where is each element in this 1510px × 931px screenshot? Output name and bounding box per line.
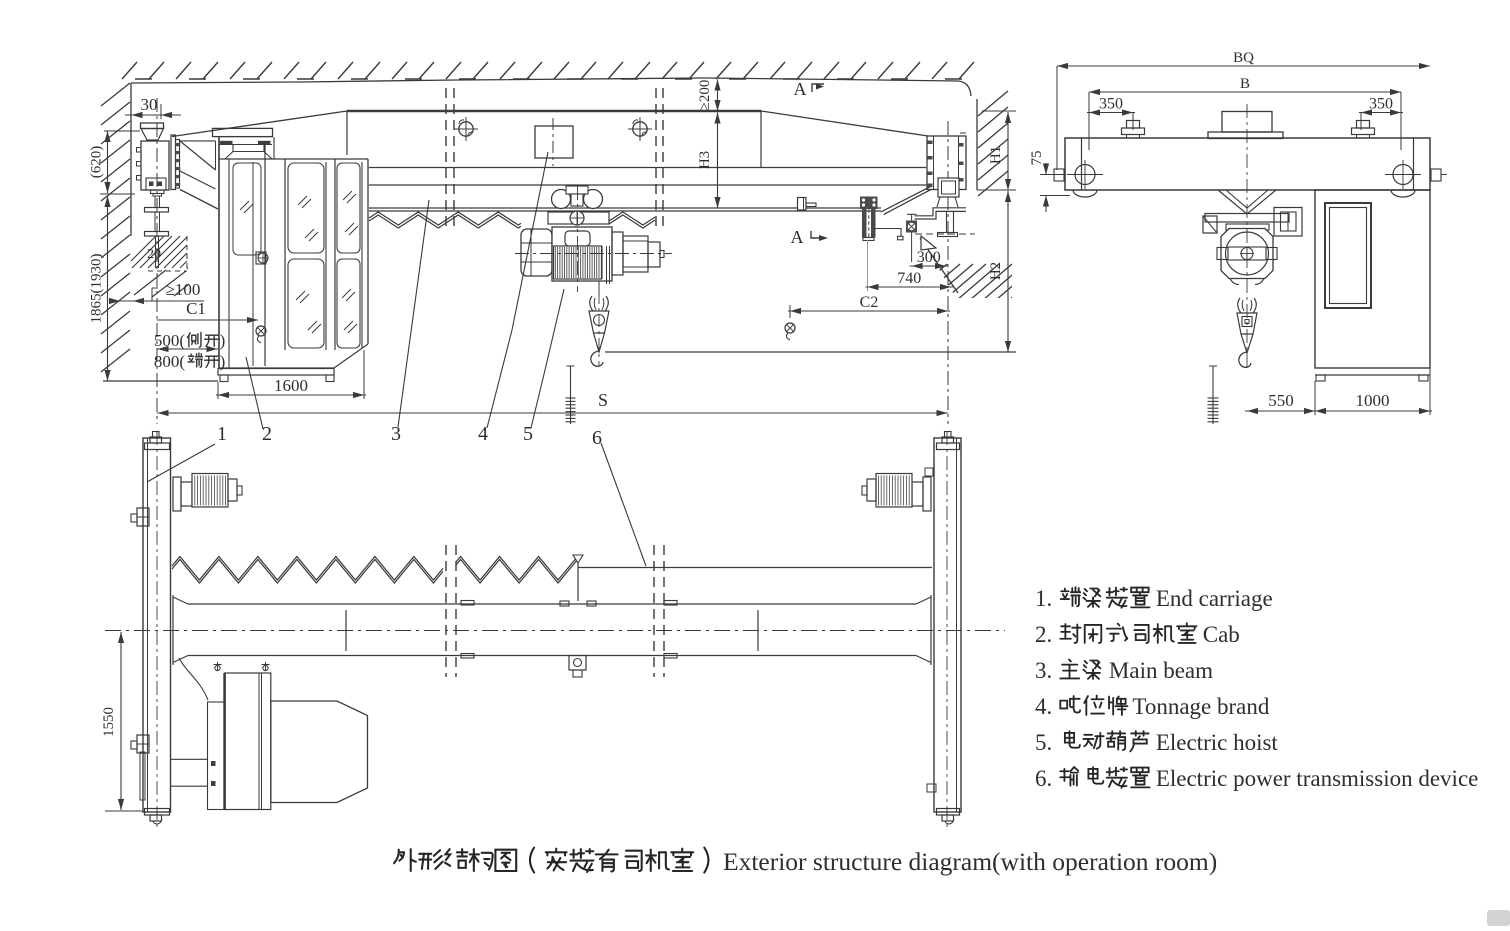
svg-text:(620): (620) — [89, 146, 105, 179]
svg-text:4.: 4. — [1035, 694, 1052, 719]
svg-text:≥200: ≥200 — [697, 80, 713, 111]
svg-text:): ) — [220, 331, 226, 350]
svg-text:Cab: Cab — [1203, 622, 1240, 647]
svg-text:1000: 1000 — [1356, 391, 1390, 410]
svg-text:4: 4 — [478, 423, 488, 445]
svg-text:6.: 6. — [1035, 766, 1052, 791]
svg-text:C1: C1 — [186, 299, 206, 318]
svg-text:H2: H2 — [988, 262, 1004, 280]
svg-text:Exterior structure diagram(wit: Exterior structure diagram(with operatio… — [723, 847, 1217, 876]
svg-text:H1: H1 — [988, 146, 1004, 164]
svg-text:Tonnage brand: Tonnage brand — [1132, 694, 1269, 719]
svg-text:Electric hoist: Electric hoist — [1156, 730, 1279, 755]
svg-text:C2: C2 — [860, 294, 879, 311]
svg-text:Main beam: Main beam — [1109, 658, 1213, 683]
svg-text:H3: H3 — [697, 151, 713, 169]
svg-text:3.: 3. — [1035, 658, 1052, 683]
svg-text:75: 75 — [1029, 151, 1045, 166]
svg-text:End carriage: End carriage — [1156, 586, 1273, 611]
svg-text:6: 6 — [592, 427, 602, 449]
svg-text:Electric power transmission de: Electric power transmission device — [1156, 766, 1479, 791]
svg-text:2.: 2. — [1035, 622, 1052, 647]
svg-text:1865(1930): 1865(1930) — [89, 254, 105, 324]
svg-text:BQ: BQ — [1233, 50, 1254, 66]
svg-text:A: A — [791, 227, 804, 247]
svg-text:1600: 1600 — [274, 376, 308, 395]
svg-text:5: 5 — [523, 423, 533, 445]
svg-text:1550: 1550 — [101, 707, 117, 737]
svg-text:1.: 1. — [1035, 586, 1052, 611]
svg-text:740: 740 — [897, 270, 921, 287]
svg-text:1: 1 — [217, 423, 227, 445]
svg-text:5.: 5. — [1035, 730, 1052, 755]
svg-text:550: 550 — [1268, 391, 1294, 410]
svg-text:2: 2 — [262, 423, 272, 445]
svg-text:): ) — [220, 352, 226, 371]
svg-text:350: 350 — [1099, 96, 1123, 113]
svg-text:A: A — [794, 79, 807, 99]
svg-text:300: 300 — [917, 249, 941, 266]
svg-text:S: S — [598, 390, 608, 410]
svg-text:≥100: ≥100 — [166, 280, 201, 299]
svg-text:800(: 800( — [154, 352, 186, 371]
svg-text:500(: 500( — [154, 331, 186, 350]
svg-text:30: 30 — [141, 95, 158, 114]
svg-text:B: B — [1240, 76, 1250, 92]
svg-text:3: 3 — [391, 423, 401, 445]
svg-text:350: 350 — [1369, 96, 1393, 113]
